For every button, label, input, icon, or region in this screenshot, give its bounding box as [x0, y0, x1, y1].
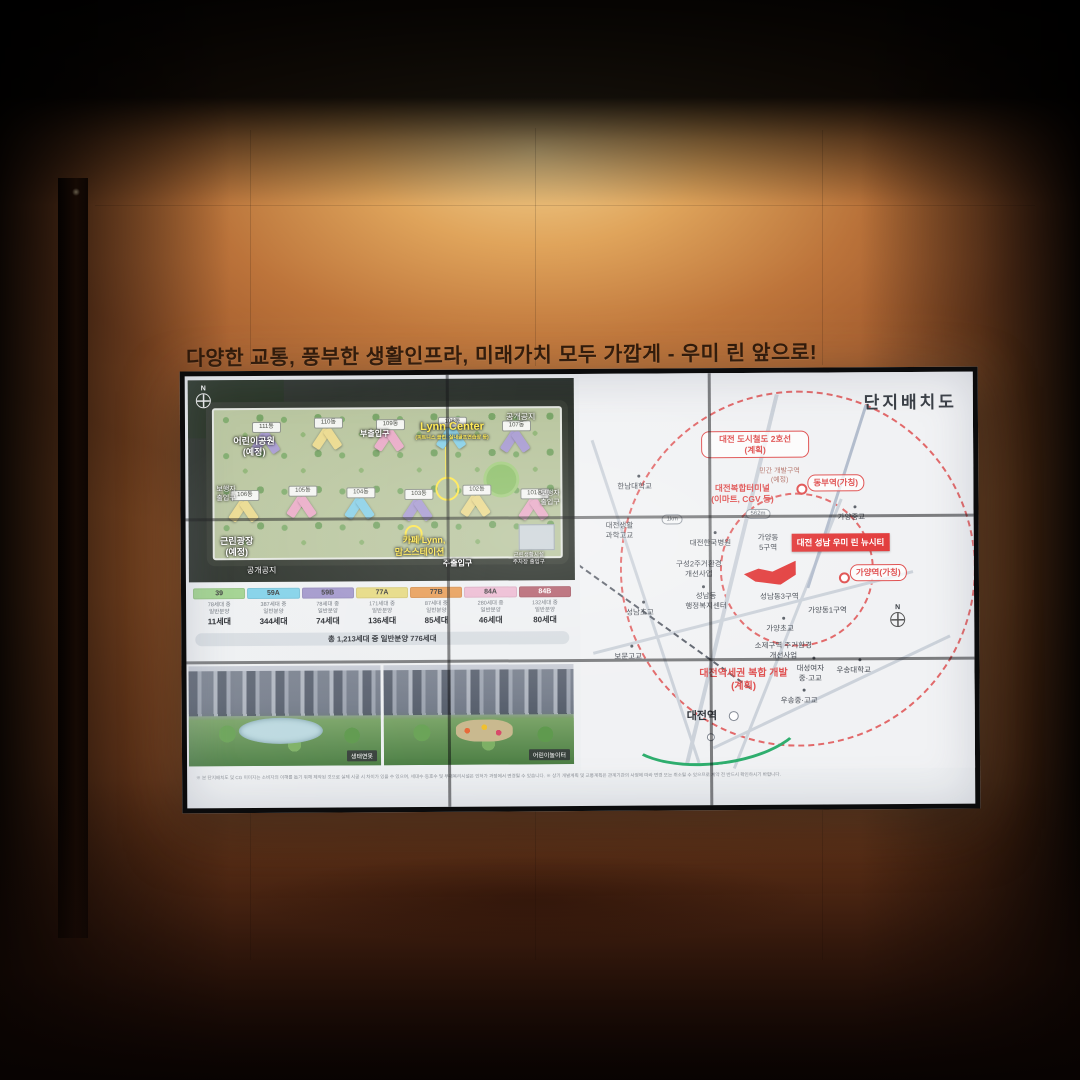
label-cafe-lynn: 카페 Lynn,: [403, 535, 446, 547]
building-badge: 103동: [404, 489, 433, 500]
unit-pill: 84A: [464, 586, 516, 597]
poi-dot: [642, 601, 645, 604]
floor-shadow: [150, 840, 910, 960]
label-plaza: 근린광장 (예정): [211, 536, 263, 559]
dongbu-station-marker: [796, 484, 807, 495]
unit-pill: 59B: [302, 587, 354, 598]
render-photo-pond: 생태연못: [188, 665, 381, 766]
unit-col-59a: 59A 387세대 중 일반분양 344세대: [247, 588, 300, 629]
compass-n-label: N: [196, 385, 211, 392]
gayang-station-marker: [839, 572, 850, 583]
unit-pill: 84B: [519, 586, 571, 597]
poi-dot: [782, 617, 785, 620]
label-ped-gate-left: 보행자 출입구: [216, 486, 235, 504]
label-moms-station: 맘스스테이션: [395, 547, 445, 559]
label-children-park: 어린이공원 (예정): [218, 436, 290, 459]
label-parking-gate: 근린생활시설 주차장 출입구: [497, 552, 561, 566]
label-sub-gate: 부출입구: [360, 429, 390, 439]
unit-type-table: 39 78세대 중 일반분양 11세대 59A 387세대 중 일반분양 344…: [191, 586, 573, 647]
label-woosong-univ: 우송대학교: [836, 665, 871, 675]
unit-col-39: 39 78세대 중 일반분양 11세대: [193, 588, 246, 629]
unit-pill: 77B: [410, 587, 462, 598]
project-name-box: 대전 성남 우미 린 뉴시티: [792, 533, 890, 552]
building-shape: [312, 425, 342, 451]
label-ped-gate-right: 보행자 출입구: [540, 490, 559, 508]
label-station-dev: 대전역세권 복합 개발 (계획): [676, 667, 810, 694]
poi-dot: [853, 505, 856, 508]
compass-n-label: N: [890, 604, 905, 611]
unit-col-77a: 77A 171세대 중 일반분양 136세대: [356, 587, 409, 628]
map-compass: N: [890, 604, 905, 627]
showroom-photo: 다양한 교통, 풍부한 생활인프라, 미래가치 모두 가깝게 - 우미 린 앞으…: [0, 0, 1080, 1080]
subway-icon: [729, 711, 739, 721]
unit-col-77b: 77B 87세대 중 일반분양 85세대: [410, 587, 463, 628]
poi-dot: [714, 531, 717, 534]
gayang-station-box: 가양역(가칭): [850, 564, 907, 581]
label-gayang5: 가양동 5구역: [758, 533, 779, 553]
metro-line2-box: 대전 도시철도 2호선 (계획): [701, 431, 809, 459]
building-badge: 104동: [346, 487, 375, 498]
label-guseong2: 구성2주거환경 개선사업: [662, 559, 736, 579]
poi-dot: [702, 585, 705, 588]
playground-shape: [456, 719, 513, 741]
poi-dot: [637, 475, 640, 478]
retail-building: [519, 524, 555, 550]
label-open-space-top: 공개공지: [506, 412, 536, 422]
compass-icon: [890, 612, 905, 627]
label-gayang-elem: 가양초교: [766, 624, 794, 634]
building-shape: [460, 493, 490, 519]
unit-count: 80세대: [519, 614, 571, 626]
photo-buildings: [383, 669, 573, 715]
label-hannam-univ: 한남대학교: [617, 482, 652, 492]
label-lynn-center-sub: (피트니스 클럽, 실내골프연습장 등): [394, 434, 510, 441]
photo-caption: 생태연못: [347, 750, 377, 761]
label-open-space-bottom: 공개공지: [247, 566, 277, 576]
photo-caption: 어린이놀이터: [529, 749, 570, 760]
label-lynn-center: Lynn Center: [404, 420, 500, 434]
total-units-bar: 총 1,213세대 중 일반분양 776세대: [195, 631, 569, 646]
building-badge: 102동: [462, 485, 491, 496]
building-badge: 105동: [288, 486, 317, 497]
unit-col-59b: 59B 78세대 중 일반분양 74세대: [302, 587, 355, 628]
label-seongnam3: 성남동3구역: [760, 592, 799, 602]
unit-pill: 77A: [356, 587, 408, 598]
plan-compass: N: [196, 385, 211, 408]
unit-col-84a: 84A 280세대 중 일반분양 46세대: [464, 586, 517, 627]
poi-dot: [630, 645, 633, 648]
unit-count: 136세대: [356, 615, 408, 627]
unit-count: 46세대: [465, 615, 517, 627]
label-life-science-hs: 대전생활 과학고교: [606, 521, 634, 541]
dongbu-station-box: 동부역(가칭): [807, 474, 864, 491]
photo-buildings: [188, 670, 380, 716]
label-woosong-mid-hs: 우송중·고교: [781, 696, 818, 706]
unit-pill: 39: [193, 588, 245, 599]
unit-count: 85세대: [410, 615, 462, 627]
unit-pill: 59A: [247, 588, 299, 599]
label-daeseong-girls: 대성여자 중·고교: [796, 664, 824, 684]
building-badge: 111동: [252, 422, 281, 433]
site-plan-panel: 111동 110동 109동 108동 107동 106동 105동 104동 …: [188, 378, 575, 582]
label-terminal: 대전복합터미널 (이마트, CGV 등): [687, 483, 797, 506]
compass-icon: [196, 393, 211, 408]
building-badge: 110동: [314, 417, 343, 428]
unit-count: 11세대: [193, 616, 245, 628]
poi-dot: [803, 689, 806, 692]
building-shape: [286, 494, 316, 520]
label-seongnam-center: 성남동 행정복지센터: [674, 591, 738, 611]
unit-count: 74세대: [302, 616, 354, 628]
wall-headline: 다양한 교통, 풍부한 생활인프라, 미래가치 모두 가깝게 - 우미 린 앞으…: [186, 335, 854, 371]
location-map-panel: 단지배치도 대전 도시철도 2호선 (계획) 동부역(가칭) 가양역(가칭) 대…: [579, 372, 975, 770]
label-private-dev: 민간 개발구역 (예정): [759, 467, 800, 485]
unit-col-84b: 84B 132세대 중 일반분양 80세대: [519, 586, 572, 627]
map-title: 단지배치도: [864, 388, 957, 414]
label-gayang1: 가양동1구역: [808, 605, 847, 615]
label-seongnam-elem: 성남초교: [626, 608, 654, 618]
fine-print-disclaimer: ※ 본 단지배치도 및 CG 이미지는 소비자의 이해를 돕기 위해 제작된 것…: [196, 771, 966, 783]
building-shape: [500, 428, 530, 454]
video-wall-screen: 111동 110동 109동 108동 107동 106동 105동 104동 …: [180, 367, 981, 814]
render-photo-playground: 어린이놀이터: [383, 664, 574, 765]
unit-count: 344세대: [247, 616, 299, 628]
